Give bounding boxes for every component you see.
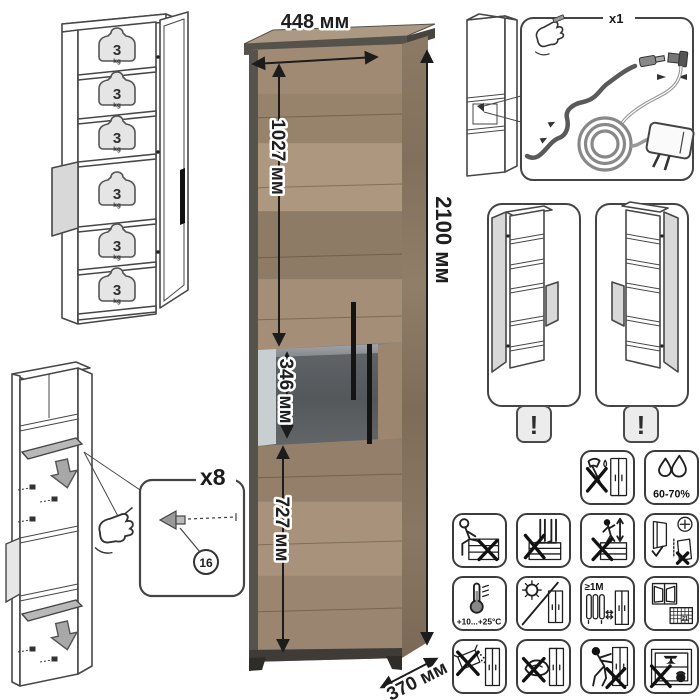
wiring-cabinet [467,14,517,176]
icon-no-climbing [580,513,635,568]
no-standing-pictogram [518,515,569,566]
icon-ventilation: 21 [644,576,699,631]
icon-humidity: 60-70% [644,450,699,505]
icon-no-standing [516,513,571,568]
shelf-pin-panel [140,480,244,596]
kettlebell-icon [676,672,685,682]
no-sharp-tools-pictogram [582,452,633,503]
icon-no-sitting [452,513,507,568]
door-handle-upper [351,302,356,400]
icon-no-direct-sunlight [516,576,571,631]
instruction-sheet: 3 kg 3 kg 3 kg 3 kg 3 kg [0,0,700,700]
icon-door-adjustment [644,513,699,568]
icon-temperature-range: +10...+25°C [452,576,507,631]
sun-icon [523,581,542,600]
powder-box-icon [454,645,483,670]
cabinet-side [402,36,428,658]
door-reversal-diagram: ! ! [480,196,692,448]
lower-section-label: 727 мм [271,496,292,561]
warning-exclamation: ! [530,410,539,440]
thermometer-icon [471,584,489,613]
ventilation-pictogram: 21 [646,578,697,629]
radiator-icon [587,595,605,624]
display-flap [6,538,20,602]
powder-dots [480,654,486,663]
carcass [6,362,92,686]
temperature-label: +10...+25°C [457,616,502,626]
load-capacity-diagram: 3 kg 3 kg 3 kg 3 kg 3 kg [4,2,204,352]
x-mark [652,666,671,686]
humidity-label: 60-70% [653,488,690,500]
shelf-pin-quantity: x8 [200,464,226,490]
droplet-icon [604,460,607,466]
warning-badge: ! [624,406,658,442]
door-bad [674,539,692,563]
plinth [249,648,402,662]
product-photo-dimensions: 448 мм 1027 мм 346 мм 727 мм 2100 мм 370… [230,0,475,700]
svg-text:kg: kg [113,202,121,209]
slash-icon [523,583,558,625]
icon-no-overloading [644,639,699,694]
window-icon [652,584,676,604]
hand-icon [95,508,133,554]
svg-text:kg: kg [113,254,121,261]
icon-no-dragging [580,639,635,694]
water-drop-icon [659,458,671,476]
person-icon [592,647,612,685]
no-wet-cloth-pictogram [518,641,569,692]
capacity-unit: kg [113,58,121,65]
svg-text:3: 3 [113,130,121,147]
icon-no-abrasives [452,639,507,694]
svg-text:3: 3 [113,186,121,203]
svg-text:3: 3 [113,238,121,255]
part-number: 16 [199,556,213,570]
icon-heat-distance: ≥1M [580,576,635,631]
svg-text:kg: kg [113,298,121,305]
icon-no-sharp-tools [580,450,635,505]
no-overloading-pictogram [646,641,697,692]
glass-right-column [378,342,402,440]
width-label: 448 мм [281,11,350,33]
led-kit-quantity: x1 [609,11,623,26]
door-handle [180,168,185,225]
x-mark [607,669,625,688]
svg-text:kg: kg [113,102,121,109]
anvil-icon [664,656,678,664]
calendar-icon: 21 [670,608,692,624]
no-abrasives-pictogram [454,641,505,692]
no-sitting-pictogram [454,515,505,566]
water-drop-icon [672,456,686,477]
led-kit-diagram: x1 [455,6,700,188]
svg-text:3: 3 [113,86,121,103]
glass-mirror-sliver [258,349,276,446]
door-adjustment-pictogram [646,515,697,566]
svg-text:!: ! [637,410,646,440]
x-mark [479,541,497,560]
svg-text:3: 3 [113,282,121,299]
door-ok [652,521,666,555]
heat-distance-pictogram: ≥1M [582,578,633,629]
middle-section-label: 346 мм [275,358,296,423]
shelf-assembly-diagram: x8 16 [0,348,250,700]
no-climbing-pictogram [582,515,633,566]
upper-section-label: 1027 мм [267,119,288,195]
spacing-arrows-icon [606,610,612,618]
svg-text:kg: kg [113,146,121,153]
no-sunlight-pictogram [518,578,569,629]
height-label: 2100 мм [431,196,456,284]
up-down-arrow-icon [617,519,623,541]
cabinet-left-edge [249,50,258,662]
icon-no-wet-cloth [516,639,571,694]
warning-badge: ! [517,406,551,442]
glass-door [156,12,188,308]
x-mark [593,539,612,559]
x-mark [588,469,607,491]
display-flap [52,162,78,236]
no-dragging-pictogram [582,641,633,692]
temperature-pictogram: +10...+25°C [454,578,505,629]
humidity-pictogram: 60-70% [646,452,697,503]
distance-label: ≥1M [585,582,604,593]
calendar-day: 21 [682,616,688,622]
door-handle-lower [367,344,372,444]
capacity-value: 3 [113,42,121,59]
